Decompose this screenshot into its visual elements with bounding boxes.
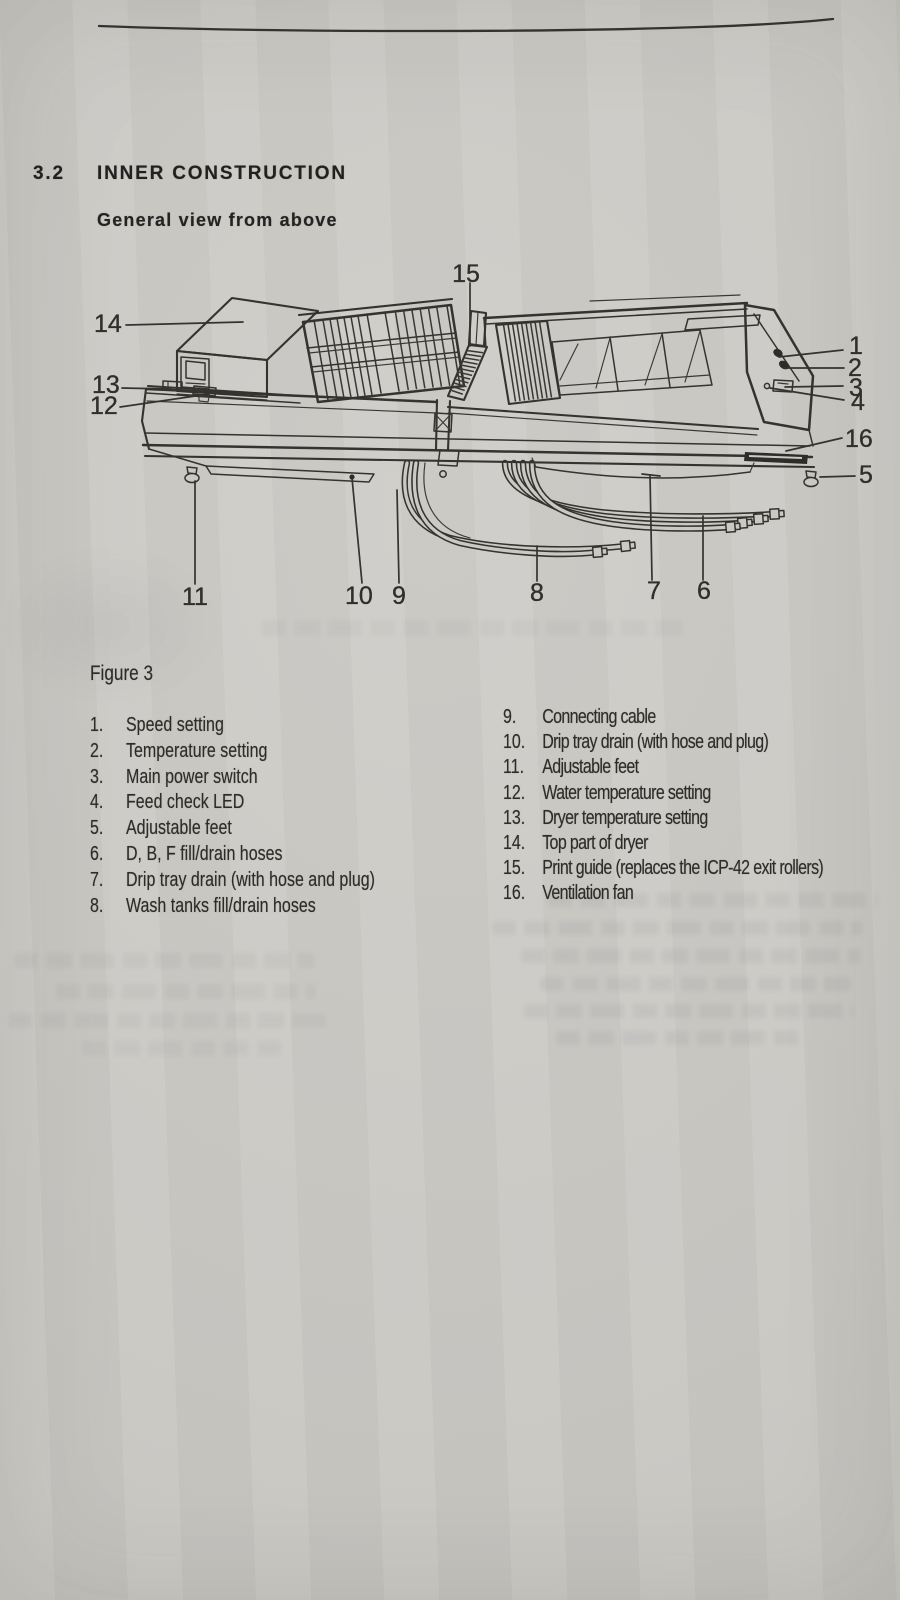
section-number: 3.2 [33,163,65,185]
belly-pan [536,467,750,478]
callout-14: 14 [94,310,122,338]
top-rule [0,0,900,45]
legend-item: 3.Main power switch [90,765,375,791]
legend-item-label: Wash tanks fill/drain hoses [126,894,316,920]
callout-11: 11 [182,583,208,611]
legend-item-number: 8. [90,894,126,920]
legend-item: 12.Water temperature setting [503,781,823,806]
adjustable-foot-left [185,467,199,483]
legend-item-number: 3. [90,765,126,791]
legend-item: 13.Dryer temperature setting [503,806,823,831]
temperature-knob [777,359,790,371]
callout-9: 9 [392,582,406,610]
legend-item-label: Speed setting [126,713,224,739]
hose-connector [754,513,769,524]
legend-item: 15.Print guide (replaces the ICP-42 exit… [503,856,823,881]
legend-item-number: 16. [503,881,542,906]
scan-ghosting [8,1013,328,1028]
hose-connector [770,509,785,520]
legend-item-number: 7. [90,868,126,894]
legend-item-number: 2. [90,739,126,765]
callout-6: 6 [697,577,711,605]
callout-8: 8 [530,579,544,607]
legend-item-number: 10. [503,730,542,755]
legend-item: 9.Connecting cable [503,705,823,730]
scanned-manual-page: 3.2 INNER CONSTRUCTION General view from… [0,0,900,1600]
scan-ghosting [56,984,316,999]
legend-item-label: Main power switch [126,765,258,791]
machine-diagram: 15 14 13 12 1 2 3 4 16 5 11 10 9 8 7 6 [0,250,900,620]
callout-4: 4 [851,388,865,416]
scan-ghosting [556,1031,806,1045]
legend-item: 16.Ventilation fan [503,881,823,906]
legend-item-number: 4. [90,790,126,816]
callout-16: 16 [845,425,873,453]
section-subtitle: General view from above [97,210,338,231]
dryer-top-box [177,298,318,400]
legend-item-number: 9. [503,705,542,730]
legend-item-label: Temperature setting [126,739,267,765]
feed-check-led [764,383,769,388]
adjustable-foot-right [804,471,818,487]
callout-12: 12 [90,392,118,420]
legend-item: 1.Speed setting [90,713,375,739]
legend-item-number: 15. [503,856,542,881]
legend-item-label: Adjustable feet [126,816,232,842]
legend-item: 7.Drip tray drain (with hose and plug) [90,868,375,894]
legend-item: 5.Adjustable feet [90,816,375,842]
dryer-section [448,295,760,435]
legend-item-label: Adjustable feet [542,755,638,780]
legend-item: 14.Top part of dryer [503,831,823,856]
legend-item: 4.Feed check LED [90,790,375,816]
scan-ghosting [540,977,850,991]
legend-item-number: 14. [503,831,542,856]
callout-10: 10 [345,582,373,610]
legend-item-label: Dryer temperature setting [542,806,707,831]
legend-item: 11.Adjustable feet [503,755,823,780]
figure-caption: Figure 3 [90,661,153,686]
scan-ghosting [14,953,314,968]
scan-ghosting [262,620,682,636]
legend-item-label: Connecting cable [542,705,655,730]
fill-drain-hoses [405,463,784,557]
legend-right-column: 9.Connecting cable 10.Drip tray drain (w… [503,705,823,907]
legend-item-number: 11. [503,755,542,780]
callout-15: 15 [452,260,480,288]
legend-item: 8.Wash tanks fill/drain hoses [90,894,375,920]
legend-item: 2.Temperature setting [90,739,375,765]
hose-connector [621,540,636,551]
legend-item-number: 1. [90,713,126,739]
legend-item-label: Water temperature setting [542,781,710,806]
legend-item-label: Drip tray drain (with hose and plug) [126,868,375,894]
scan-ghosting [521,949,861,963]
legend-item-number: 12. [503,781,542,806]
legend-item-number: 13. [503,806,542,831]
legend-item-number: 6. [90,842,126,868]
machine-body [142,389,818,487]
legend-item-label: Print guide (replaces the ICP-42 exit ro… [542,856,823,881]
scan-ghosting [82,1041,282,1056]
legend-item-label: Feed check LED [126,790,244,816]
left-drip-tray [206,466,374,482]
scan-ghosting [524,1004,854,1018]
callout-7: 7 [647,577,661,605]
legend-item-label: Top part of dryer [542,831,648,856]
legend-item: 10.Drip tray drain (with hose and plug) [503,730,823,755]
hose-connector [726,521,741,532]
legend-item-label: Drip tray drain (with hose and plug) [542,730,768,755]
legend-item: 6.D, B, F fill/drain hoses [90,842,375,868]
legend-item-number: 5. [90,816,126,842]
callout-5: 5 [859,461,873,489]
legend-item-label: D, B, F fill/drain hoses [126,842,283,868]
legend-left-column: 1.Speed setting 2.Temperature setting 3.… [90,713,375,919]
section-title: INNER CONSTRUCTION [97,163,347,185]
legend-item-label: Ventilation fan [542,881,633,906]
scan-ghosting [492,921,862,935]
hose-connector [593,546,608,557]
wash-tank-racks [299,299,464,402]
